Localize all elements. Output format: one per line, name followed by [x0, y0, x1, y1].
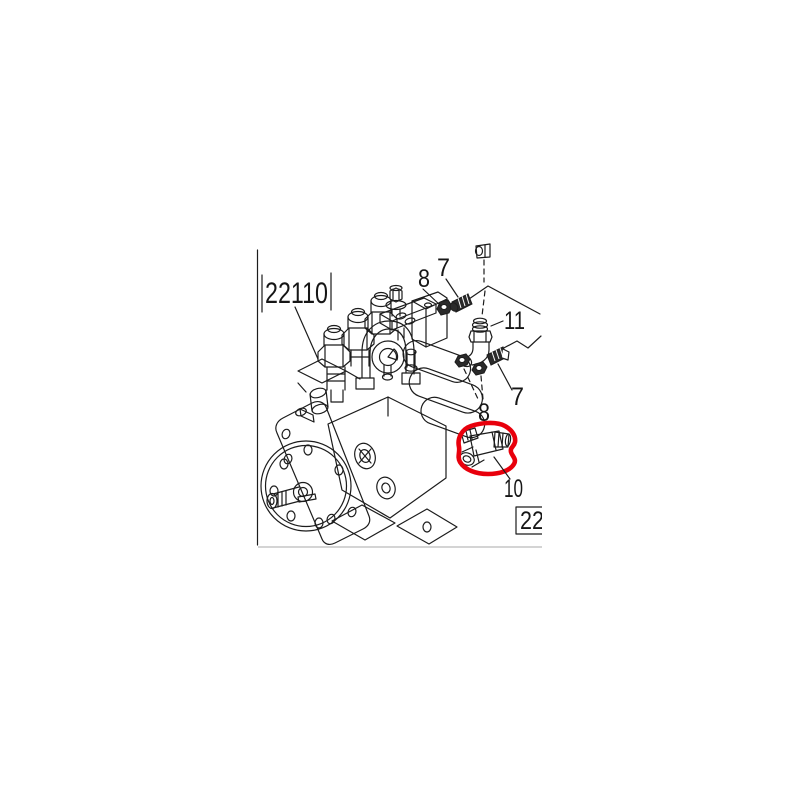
callout-7-top: 7 [437, 254, 450, 282]
injection-pump-drawing [261, 286, 488, 545]
part-7-fitting-top [449, 294, 472, 313]
part-ref-box-label: 22 [520, 507, 544, 535]
callout-7-right: 7 [511, 383, 524, 411]
diagram-canvas: 22110 8 7 11 7 8 10 22 [0, 0, 800, 800]
pipe-clip-part [476, 244, 491, 258]
figure-number-label: 22110 [265, 277, 328, 310]
part-ref-box: 22 [516, 507, 552, 535]
centerline-and-break-lines [464, 260, 541, 399]
part-8-washer-left [455, 354, 470, 367]
callout-8-mid: 8 [478, 399, 490, 427]
callout-10: 10 [504, 475, 523, 503]
part-7-fitting-right [487, 347, 509, 365]
callout-11: 11 [504, 307, 525, 335]
part-8-washer-mid [472, 362, 487, 375]
figure-number: 22110 [262, 273, 331, 312]
parts-diagram-image: 22110 8 7 11 7 8 10 22 [0, 0, 800, 800]
callout-8-top: 8 [418, 265, 430, 293]
part-10-valve [458, 428, 512, 468]
